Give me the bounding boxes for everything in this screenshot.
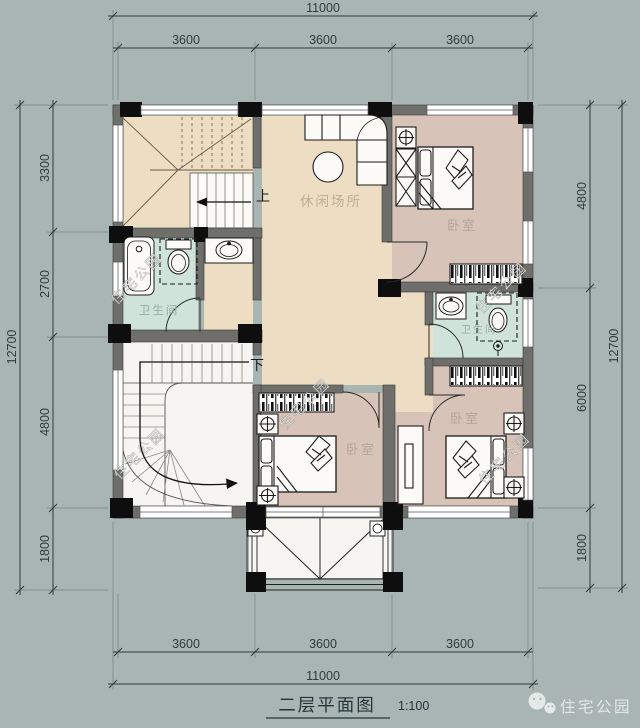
plan-scale: 1:100 [398, 699, 429, 713]
basin [436, 293, 466, 319]
dim-bottom-seg2: 3600 [309, 637, 337, 651]
stairs-up-label: 上 [256, 188, 270, 204]
dim-bottom-total: 11000 [306, 669, 340, 683]
round-table [313, 152, 343, 182]
dim-right-seg3: 1800 [575, 534, 589, 562]
floor-plan-page: 休闲场所 卧室 卧室 卧室 卫生间 卫生间 上 下 [0, 0, 640, 728]
basin-counter [205, 238, 253, 263]
dim-bottom-seg3: 3600 [446, 637, 474, 651]
dim-right-seg1: 4800 [575, 182, 589, 210]
balcony-sliding-door [266, 507, 380, 517]
dim-top-seg2: 3600 [309, 33, 337, 47]
bedroom3-label: 卧室 [450, 411, 480, 426]
leisure-label: 休闲场所 [300, 194, 362, 209]
dim-right-seg2: 6000 [575, 384, 589, 412]
dim-bottom-seg1: 3600 [172, 637, 200, 651]
brand-name: 住宅公园 [560, 698, 632, 716]
double-bed [259, 436, 336, 492]
bedroom1-label: 卧室 [447, 218, 477, 233]
dim-left-seg2: 2700 [38, 270, 52, 298]
dim-left-seg4: 1800 [38, 535, 52, 563]
plan-title: 二层平面图 [278, 695, 376, 715]
bathroom1-label: 卫生间 [139, 303, 180, 317]
floor-plan-canvas: 休闲场所 卧室 卧室 卧室 卫生间 卫生间 上 下 [0, 0, 640, 728]
dim-top-seg1: 3600 [172, 33, 200, 47]
brand-logo: 住宅公园 [529, 693, 633, 717]
bedroom2-label: 卧室 [346, 442, 376, 457]
dim-left-seg3: 4800 [38, 408, 52, 436]
bathroom2-label: 卫生间 [461, 323, 497, 336]
title-block: 二层平面图 1:100 [266, 695, 429, 718]
dim-right-total: 12700 [607, 329, 621, 364]
dim-left-total: 12700 [5, 330, 19, 365]
dim-left-seg1: 3300 [38, 154, 52, 182]
dim-top-seg3: 3600 [446, 33, 474, 47]
double-bed [418, 147, 473, 209]
wechat-bubbles-icon [529, 693, 556, 714]
stairs-down-label: 下 [250, 357, 264, 373]
dim-top-total: 11000 [306, 1, 340, 15]
